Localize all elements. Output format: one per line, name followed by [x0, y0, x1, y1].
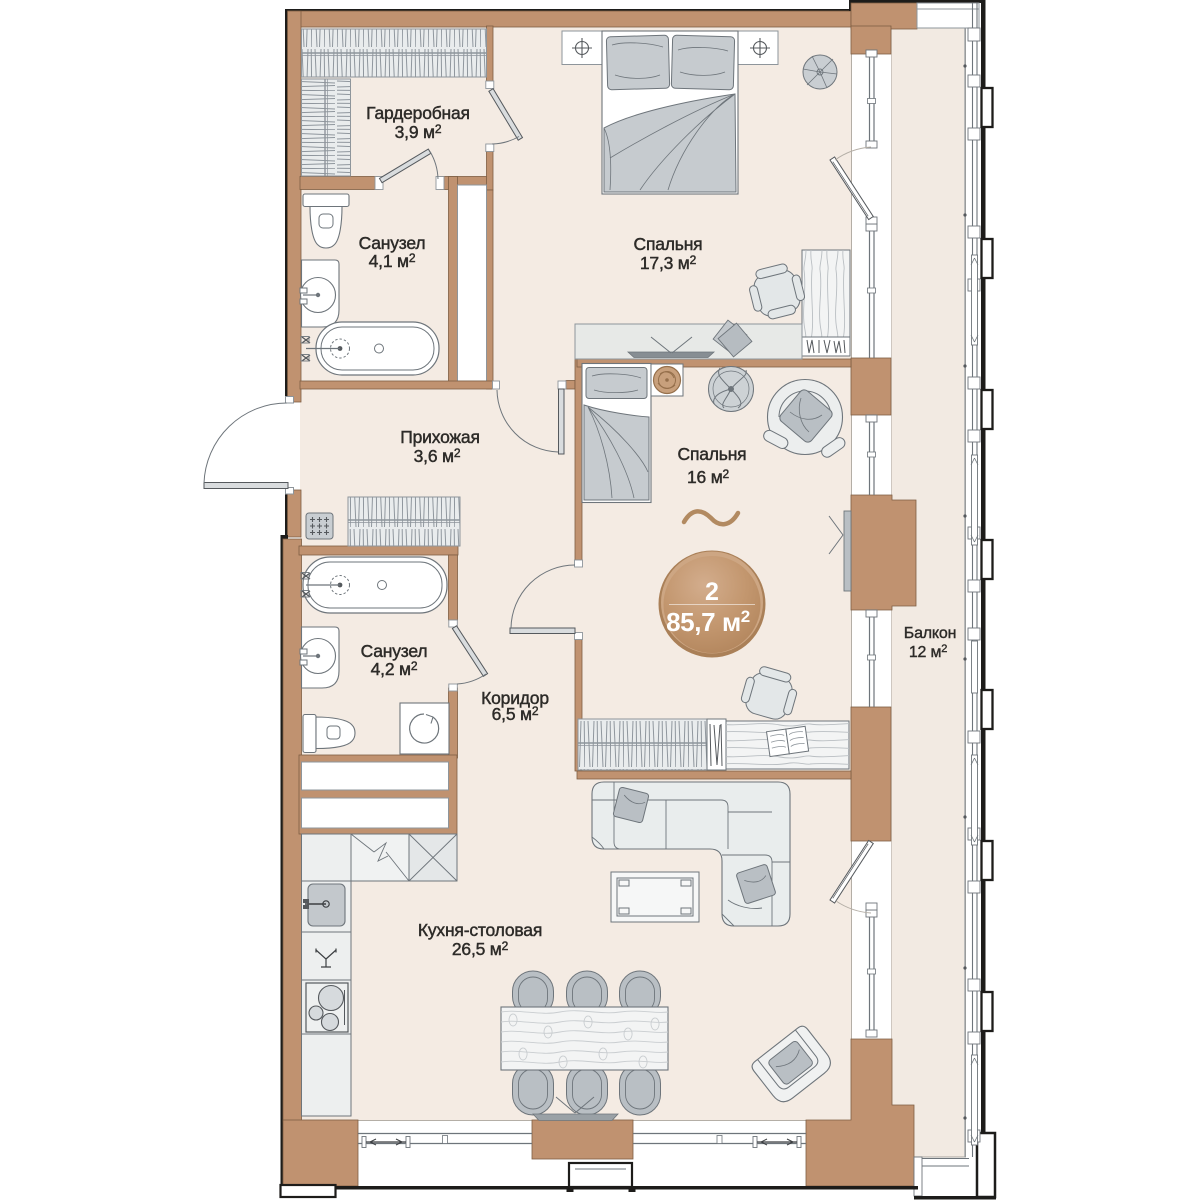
svg-text:3,6 м2: 3,6 м2	[414, 446, 461, 466]
svg-text:3,9 м2: 3,9 м2	[395, 122, 442, 142]
svg-text:Спальня: Спальня	[634, 234, 703, 254]
svg-text:4,1 м2: 4,1 м2	[369, 251, 416, 271]
svg-text:Балкон: Балкон	[904, 625, 956, 642]
svg-text:26,5 м2: 26,5 м2	[452, 939, 509, 959]
svg-text:Кухня-столовая: Кухня-столовая	[418, 920, 542, 940]
svg-text:Спальня: Спальня	[678, 444, 747, 464]
svg-text:Санузел: Санузел	[359, 233, 426, 253]
svg-text:Санузел: Санузел	[361, 641, 428, 661]
svg-text:6,5 м2: 6,5 м2	[492, 704, 539, 724]
svg-text:Гардеробная: Гардеробная	[366, 103, 470, 123]
svg-text:2: 2	[705, 578, 719, 606]
svg-text:17,3 м2: 17,3 м2	[640, 253, 697, 273]
svg-text:85,7 м2: 85,7 м2	[666, 607, 750, 637]
svg-text:Прихожая: Прихожая	[400, 427, 480, 447]
svg-text:4,2 м2: 4,2 м2	[371, 659, 418, 679]
